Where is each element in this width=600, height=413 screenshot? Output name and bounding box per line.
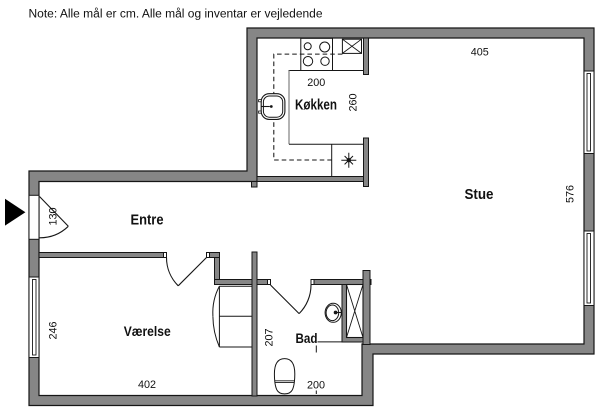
svg-text:Bad: Bad	[296, 331, 318, 346]
svg-text:Note: Alle mål er cm. Alle mål: Note: Alle mål er cm. Alle mål og invent…	[29, 9, 323, 21]
svg-text:246: 246	[47, 321, 59, 339]
svg-text:405: 405	[471, 47, 489, 59]
svg-text:Stue: Stue	[465, 186, 494, 203]
svg-text:207: 207	[263, 328, 275, 346]
svg-text:200: 200	[307, 77, 325, 89]
svg-text:402: 402	[138, 379, 156, 391]
svg-text:260: 260	[348, 93, 360, 111]
svg-text:200: 200	[307, 379, 325, 391]
svg-text:Entre: Entre	[131, 212, 164, 229]
svg-text:Køkken: Køkken	[295, 98, 337, 114]
svg-text:576: 576	[564, 185, 576, 203]
svg-text:Værelse: Værelse	[124, 323, 171, 339]
svg-text:130: 130	[48, 207, 60, 225]
